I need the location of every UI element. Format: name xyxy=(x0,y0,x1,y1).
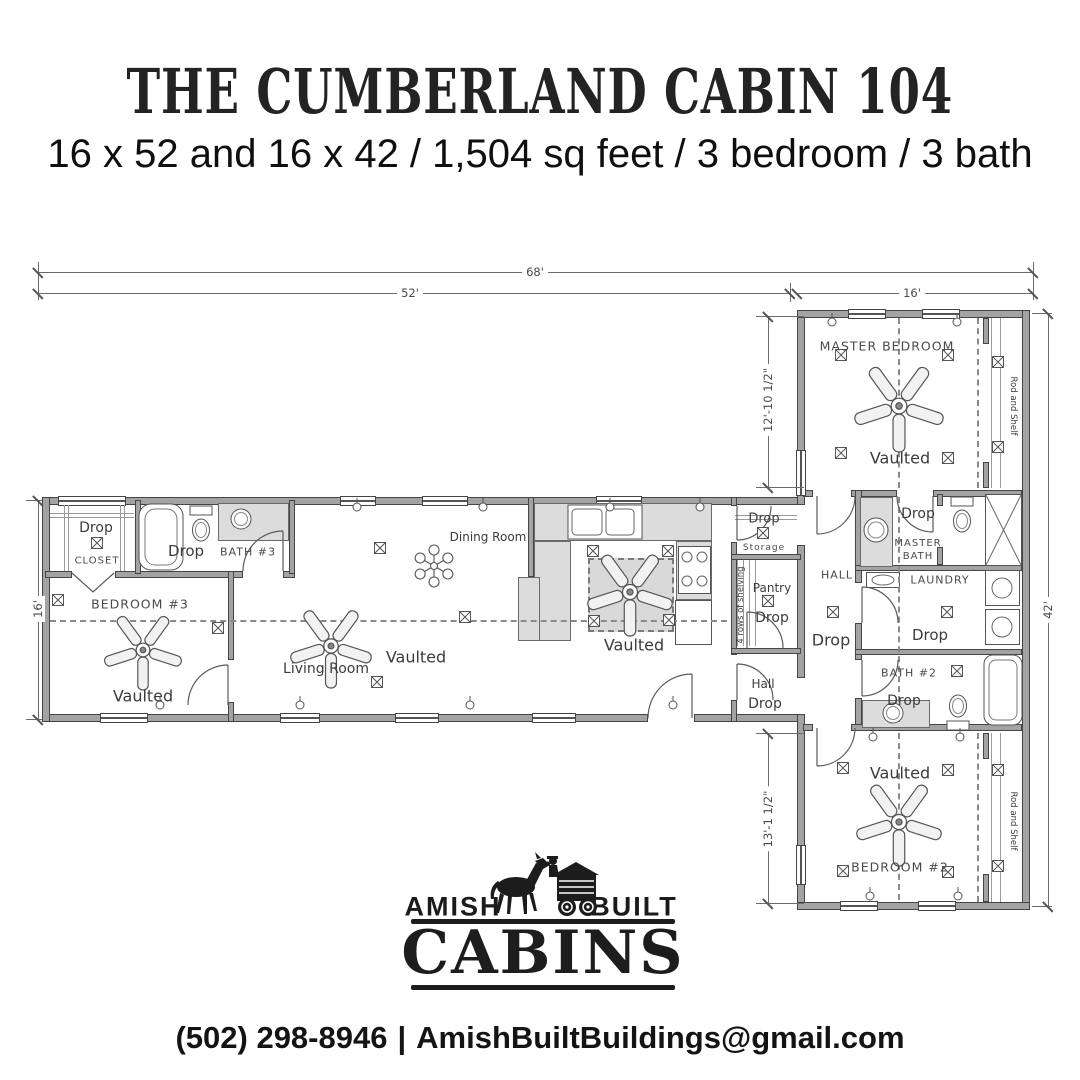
outlet-icon xyxy=(953,318,961,326)
ceiling-fan-icon xyxy=(855,783,942,866)
bedroom3-vaulted-label: Vaulted xyxy=(113,687,173,706)
outlet-icon xyxy=(669,701,677,709)
outlet-icon xyxy=(606,503,614,511)
laundry-sink-bowl xyxy=(872,575,894,585)
dim-main-depth: 16' xyxy=(31,596,45,622)
living-room-label: Living Room xyxy=(283,661,369,677)
outlet-icon xyxy=(296,701,304,709)
outlet-icon xyxy=(466,701,474,709)
hall-small-drop-label: Drop xyxy=(748,696,782,712)
rod-shelf-bedroom2-label: Rod and Shelf xyxy=(1008,792,1018,851)
toilet-icon xyxy=(190,506,212,515)
closet-label: CLOSET xyxy=(75,556,120,567)
wing-hall-drop-label: Drop xyxy=(812,631,851,650)
dim-wing-depth: 42' xyxy=(1041,597,1055,623)
outlet-icon xyxy=(956,733,964,741)
wing-hall-label: HALL xyxy=(821,569,853,582)
outlet-icon xyxy=(828,318,836,326)
pantry-shelving-label: 4 rows of shelving xyxy=(736,566,746,643)
outlet-icon xyxy=(696,503,704,511)
bath3-drop-label: Drop xyxy=(168,542,204,560)
dim-overall-width: 68' xyxy=(522,265,548,279)
master-bath-label: MASTER BATH xyxy=(886,537,950,563)
door-arc xyxy=(817,728,855,766)
door-arc xyxy=(648,674,692,718)
hall-small-label: Hall xyxy=(751,677,774,691)
rod-shelf-master-label: Rod and Shelf xyxy=(1008,377,1018,436)
living-vaulted-label: Vaulted xyxy=(386,648,446,667)
door-arc xyxy=(862,587,898,623)
dim-wing-width: 16' xyxy=(899,286,925,300)
bathtub xyxy=(984,655,1022,725)
dim-master-section: 12'-10 1/2" xyxy=(761,364,775,436)
appliance-door xyxy=(992,578,1012,598)
closet-drop-label: Drop xyxy=(79,520,113,536)
bedroom2-label: BEDROOM #2 xyxy=(851,860,949,875)
master-vaulted-label: Vaulted xyxy=(870,449,930,468)
bifold-door xyxy=(72,573,114,592)
pantry-drop-label: Drop xyxy=(755,610,789,626)
outlet-icon xyxy=(479,503,487,511)
page: THE CUMBERLAND CABIN 104 16 x 52 and 16 … xyxy=(0,0,1080,1080)
stove-burner xyxy=(682,552,692,562)
dining-room-label: Dining Room xyxy=(450,530,527,544)
outlet-icon xyxy=(869,733,877,741)
appliance-door xyxy=(992,617,1012,637)
floor-plan: 68' 52' 16' 16' 42' 12'-10 1/2" 13'-1 1/… xyxy=(0,0,1080,1080)
ceiling-fan-icon xyxy=(103,615,182,690)
bedroom2-vaulted-label: Vaulted xyxy=(870,764,930,783)
kitchen-sink xyxy=(568,505,642,539)
laundry-label: LAUNDRY xyxy=(910,574,969,587)
bath2-drop-label: Drop xyxy=(887,693,921,709)
master-bath-drop-label: Drop xyxy=(901,506,935,522)
bathtub xyxy=(139,504,183,570)
dim-main-width: 52' xyxy=(397,286,423,300)
stove-burner xyxy=(682,576,692,586)
outlet-icon xyxy=(866,892,874,900)
kitchen-vaulted-label: Vaulted xyxy=(604,636,664,655)
master-bedroom-label: MASTER BEDROOM xyxy=(820,339,955,354)
chandelier-icon xyxy=(415,545,453,587)
bedroom3-label: BEDROOM #3 xyxy=(91,597,189,612)
storage-label: Storage xyxy=(743,543,785,553)
storage-drop-label: Drop xyxy=(748,512,779,527)
stove-burner xyxy=(697,576,707,586)
outlet-icon xyxy=(954,892,962,900)
outlet-icon xyxy=(353,503,361,511)
door-arc xyxy=(188,665,228,705)
toilet-icon xyxy=(951,497,973,506)
door-arc xyxy=(817,496,855,534)
ceiling-fan-icon xyxy=(853,365,944,452)
bath2-label: BATH #2 xyxy=(881,667,937,680)
pantry-label: Pantry xyxy=(753,581,791,595)
bath3-label: BATH #3 xyxy=(220,546,276,559)
dim-bedroom2-section: 13'-1 1/2" xyxy=(761,787,775,852)
stove-burner xyxy=(697,552,707,562)
toilet-icon xyxy=(947,721,969,730)
laundry-drop-label: Drop xyxy=(912,626,948,644)
